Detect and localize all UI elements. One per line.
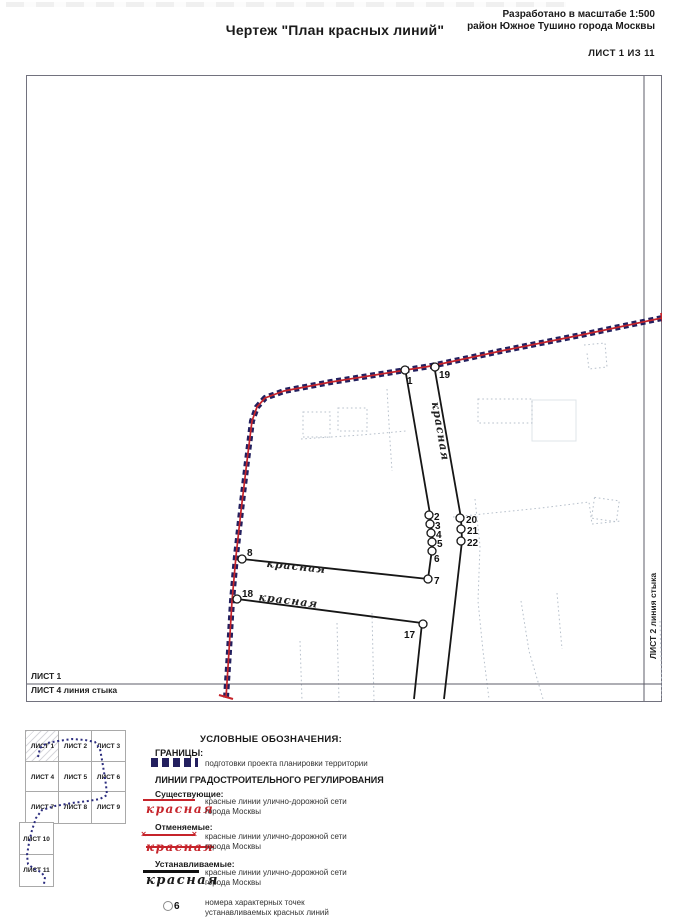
red-line-1 [242, 368, 433, 579]
sheet-index-boundary [14, 725, 130, 895]
drawing-page: Чертеж "План красных линий" Разработано … [0, 0, 680, 924]
legend-borders-desc: подготовки проекта планировки территории [205, 759, 368, 769]
point-22 [457, 537, 465, 545]
point-20 [456, 514, 464, 522]
x-mark-icon: × [192, 830, 197, 839]
sheet-number: ЛИСТ 1 ИЗ 11 [455, 48, 655, 59]
point-label-22: 22 [467, 538, 479, 549]
junction-label-sheet1: ЛИСТ 1 [31, 671, 61, 681]
boundary-symbol [151, 758, 201, 767]
junction-label-sheet2: ЛИСТ 2 линия стыка [648, 573, 658, 659]
map-frame: 11923456781817202122 краснаякраснаякрасн… [26, 75, 662, 702]
legend-cancelled-desc1: красные линии улично-дорожной сети [205, 832, 347, 842]
legend-title: УСЛОВНЫЕ ОБОЗНАЧЕНИЯ: [200, 734, 342, 745]
map-canvas: 11923456781817202122 краснаякраснаякрасн… [27, 76, 662, 702]
boundary-end-tick [661, 313, 662, 323]
district-note: район Южное Тушино города Москвы [395, 21, 655, 33]
x-mark-icon: × [141, 830, 146, 839]
legend-points-desc: номера характерных точек устанавливаемых… [205, 898, 329, 917]
point-label-21: 21 [467, 526, 479, 537]
point-number-symbol: 6 [163, 901, 180, 912]
legend: УСЛОВНЫЕ ОБОЗНАЧЕНИЯ: ГРАНИЦЫ: подготовк… [143, 728, 488, 918]
boundary-square-icon [195, 758, 198, 767]
boundary-square-icon [162, 758, 169, 767]
point-5 [428, 538, 436, 546]
legend-cancelled-desc2: города Москвы [205, 842, 347, 852]
street-label: красная [429, 401, 452, 462]
legend-existing-desc2: города Москвы [205, 807, 347, 817]
point-label-7: 7 [434, 576, 440, 587]
point-circle-icon [163, 901, 173, 911]
existing-line-label: красная [146, 802, 214, 816]
point-number-example: 6 [174, 901, 180, 912]
legend-established-desc1: красные линии улично-дорожной сети [205, 868, 347, 878]
point-19 [431, 363, 439, 371]
legend-existing-desc: красные линии улично-дорожной сети город… [205, 797, 347, 816]
development-info: Разработано в масштабе 1:500 район Южное… [395, 9, 655, 32]
point-label-1: 1 [407, 376, 413, 387]
legend-lines-heading: ЛИНИИ ГРАДОСТРОИТЕЛЬНОГО РЕГУЛИРОВАНИЯ [155, 775, 384, 785]
junction-label-sheet4: ЛИСТ 4 линия стыка [31, 685, 117, 695]
point-7 [424, 575, 432, 583]
point-label-19: 19 [439, 370, 451, 381]
scale-note: Разработано в масштабе 1:500 [395, 9, 655, 21]
boundary-square-icon [151, 758, 158, 767]
boundary-square-icon [173, 758, 180, 767]
basemap-outlines [300, 343, 662, 701]
street-label: красная [266, 557, 327, 576]
cancelled-line-label: красная [146, 840, 214, 854]
point-label-18: 18 [242, 589, 254, 600]
point-4 [427, 529, 435, 537]
point-3 [426, 520, 434, 528]
legend-borders-heading: ГРАНИЦЫ: [155, 748, 203, 758]
legend-established-desc: красные линии улично-дорожной сети город… [205, 868, 347, 887]
boundary-square-icon [184, 758, 191, 767]
legend-established-desc2: города Москвы [205, 878, 347, 888]
point-label-6: 6 [434, 554, 440, 565]
existing-line-symbol [143, 799, 195, 801]
point-2 [425, 511, 433, 519]
point-21 [457, 525, 465, 533]
point-label-20: 20 [466, 515, 478, 526]
cancelled-line-symbol: × × [143, 831, 195, 840]
point-1 [401, 366, 409, 374]
junction-lines [27, 76, 661, 701]
point-8 [238, 555, 246, 563]
street-label: красная [258, 590, 319, 610]
legend-existing-desc1: красные линии улично-дорожной сети [205, 797, 347, 807]
sheet-index-boundary-path [27, 739, 107, 884]
legend-points-desc2: устанавливаемых красных линий [205, 908, 329, 918]
point-label-8: 8 [247, 548, 253, 559]
legend-cancelled-desc: красные линии улично-дорожной сети город… [205, 832, 347, 851]
point-18 [233, 595, 241, 603]
point-17 [419, 620, 427, 628]
legend-points-desc1: номера характерных точек [205, 898, 329, 908]
point-label-5: 5 [437, 539, 443, 550]
point-label-17: 17 [404, 630, 416, 641]
scan-artifact [6, 2, 566, 7]
